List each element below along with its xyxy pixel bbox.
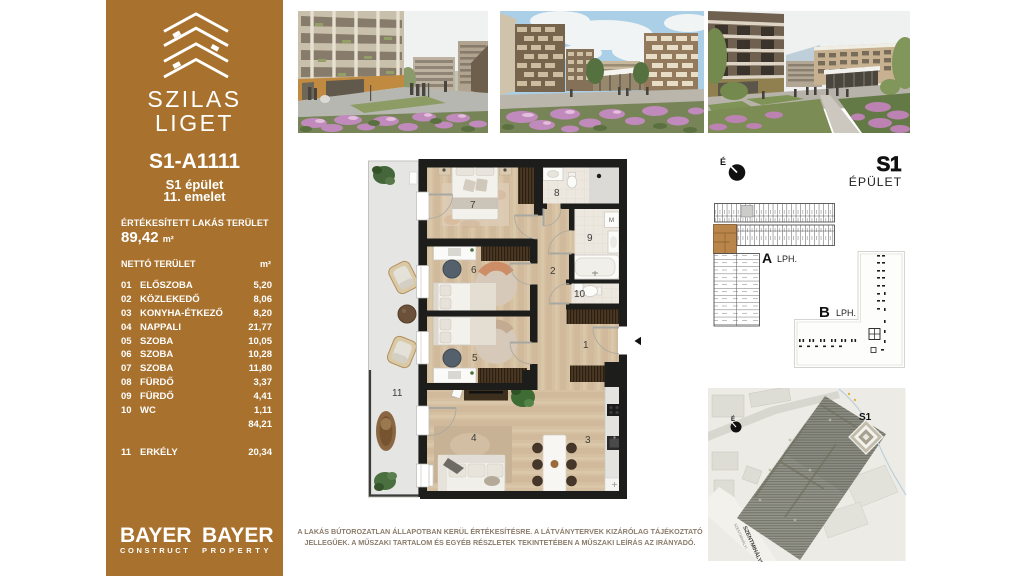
svg-text:3: 3: [585, 435, 591, 446]
svg-text:11: 11: [392, 388, 403, 399]
svg-text:5: 5: [472, 353, 478, 364]
svg-text:7: 7: [470, 200, 476, 211]
svg-text:LPH.: LPH.: [777, 254, 797, 264]
svg-text:1: 1: [583, 340, 589, 351]
svg-text:LPH.: LPH.: [836, 308, 856, 318]
svg-text:4: 4: [471, 433, 477, 444]
svg-text:B: B: [819, 304, 830, 321]
svg-text:M: M: [609, 218, 614, 224]
svg-text:2: 2: [550, 266, 556, 277]
svg-text:A: A: [762, 250, 772, 266]
svg-text:S1: S1: [876, 153, 902, 176]
svg-text:S1: S1: [859, 412, 872, 423]
svg-text:ÉPÜLET: ÉPÜLET: [849, 174, 902, 189]
svg-text:10: 10: [574, 289, 586, 300]
svg-text:8: 8: [554, 188, 560, 199]
svg-text:É: É: [720, 157, 726, 167]
svg-text:6: 6: [471, 265, 477, 276]
svg-text:9: 9: [587, 233, 593, 244]
